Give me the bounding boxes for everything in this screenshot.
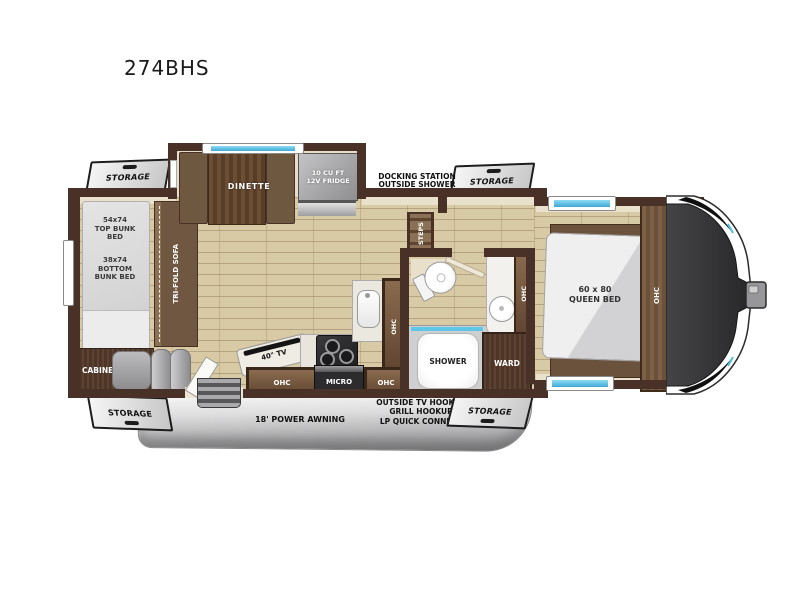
bedroom-window-bottom (546, 376, 614, 391)
flap-handle (486, 169, 501, 173)
slideout-window (202, 143, 304, 154)
burner (339, 349, 354, 364)
bottom-bunk-label: 38x74 BOTTOM BUNK BED (82, 254, 148, 284)
ohc-label: OHC (378, 379, 395, 387)
storage-flap-label: STORAGE (467, 406, 513, 417)
bath-wall-top-left (400, 248, 452, 257)
awning-label: 18' POWER AWNING (245, 413, 355, 425)
fridge-label: 10 CU FT 12V FRIDGE (306, 169, 349, 185)
slideout-side-window (170, 160, 177, 188)
wall-stub (438, 197, 447, 213)
entry-steps (197, 378, 241, 408)
bedroom-window-top (548, 196, 616, 211)
vanity-counter (486, 250, 516, 336)
fridge-counter (298, 201, 356, 216)
dinette-label: DINETTE (209, 180, 289, 192)
window-glass (554, 200, 610, 207)
flap-handle (480, 419, 495, 423)
bath-wall-left (400, 248, 409, 392)
docking-station-note: DOCKING STATION OUTSIDE SHOWER (362, 172, 472, 190)
bunk-bedding-fold (83, 310, 149, 351)
ward-label: WARD (494, 359, 520, 368)
folded-seat-left (151, 349, 172, 393)
storage-flap-label: STORAGE (105, 172, 151, 183)
ohc-label: OHC (274, 379, 291, 387)
sofa-label-text: TRI-FOLD SOFA (172, 244, 180, 304)
flap-handle (122, 165, 137, 169)
rear-window (63, 240, 74, 306)
storage-flap-bottom-left: STORAGE (87, 395, 174, 432)
dinette-seat-left (179, 152, 208, 224)
wall-bottom-main (243, 389, 548, 398)
wardrobe: WARD (482, 332, 532, 394)
vanity-sink (489, 296, 515, 322)
storage-flap-label: STORAGE (469, 176, 515, 187)
queen-bed-label: 60 x 80 QUEEN BED (555, 284, 635, 306)
toilet-drain (435, 272, 447, 284)
steps-label-text: STEPS (417, 222, 425, 245)
shower-label: SHOWER (429, 357, 466, 366)
window-glass (211, 146, 295, 151)
shower-glass (411, 327, 483, 331)
page-title: 274BHS (124, 56, 210, 80)
storage-flap-bottom-right: STORAGE (446, 393, 534, 430)
bath-wall-right (526, 248, 535, 384)
gray-ottoman (112, 351, 151, 390)
faucet (365, 293, 370, 298)
hitch-pin (749, 286, 758, 293)
refrigerator: 10 CU FT 12V FRIDGE (298, 153, 358, 201)
storage-flap-label: STORAGE (107, 408, 153, 419)
ohc-label: OHC (653, 287, 661, 304)
wall-trim (362, 197, 540, 205)
window-glass (552, 380, 608, 387)
wall-top-left (68, 188, 176, 197)
front-cap (666, 188, 772, 402)
flap-handle (124, 421, 139, 425)
shower-pan: SHOWER (417, 333, 479, 389)
floorplan-canvas: 18' POWER AWNING OUTSIDE TV HOOKUP GRILL… (0, 0, 800, 600)
top-bunk-label: 54x74 TOP BUNK BED (82, 214, 148, 244)
kitchen-sink (357, 290, 380, 328)
sink-drain (499, 306, 504, 311)
ohc-label: OHC (390, 319, 398, 335)
wall-bottom-left (68, 389, 185, 398)
